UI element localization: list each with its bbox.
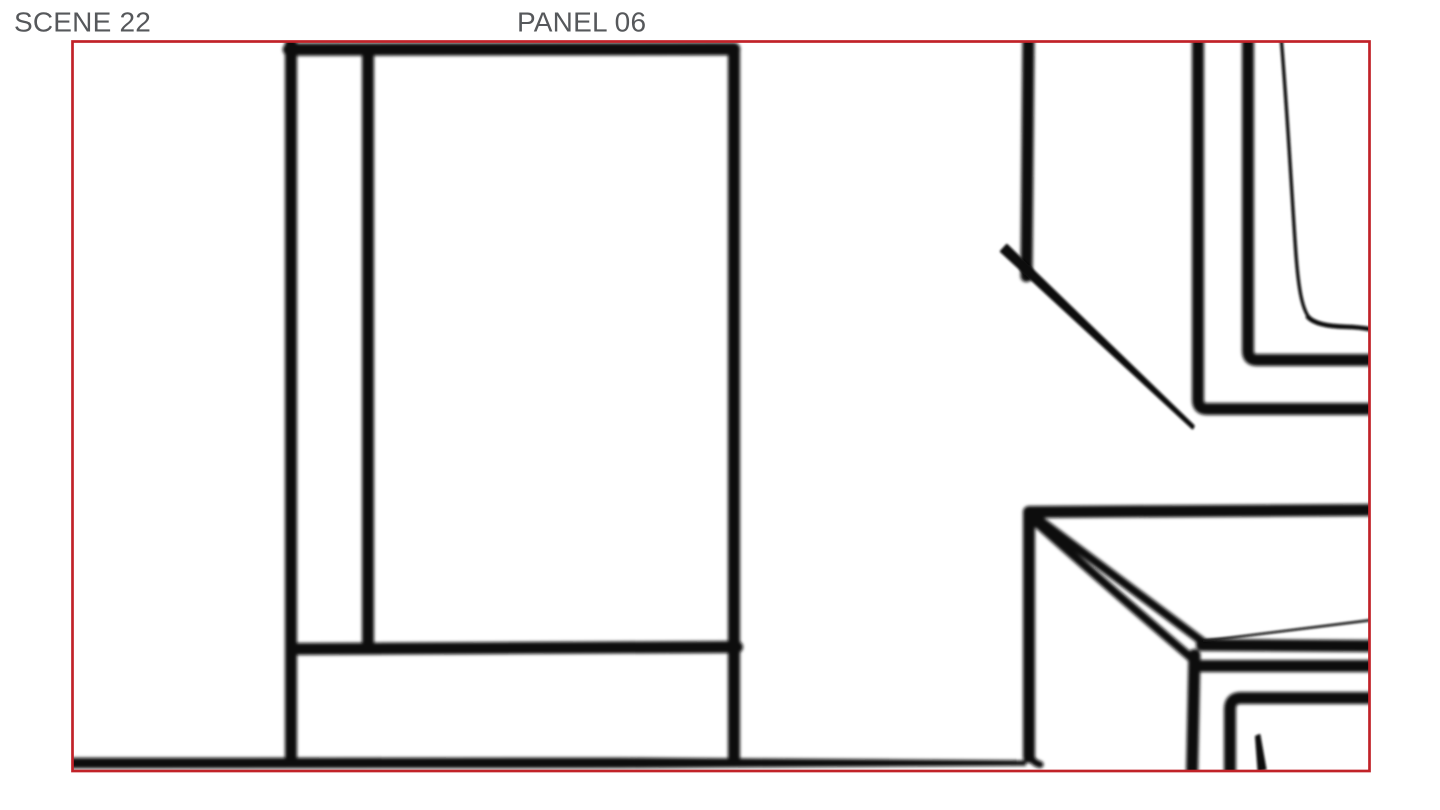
- svg-text:SCENE 22: SCENE 22: [14, 7, 151, 38]
- svg-text:PANEL 06: PANEL 06: [517, 7, 646, 38]
